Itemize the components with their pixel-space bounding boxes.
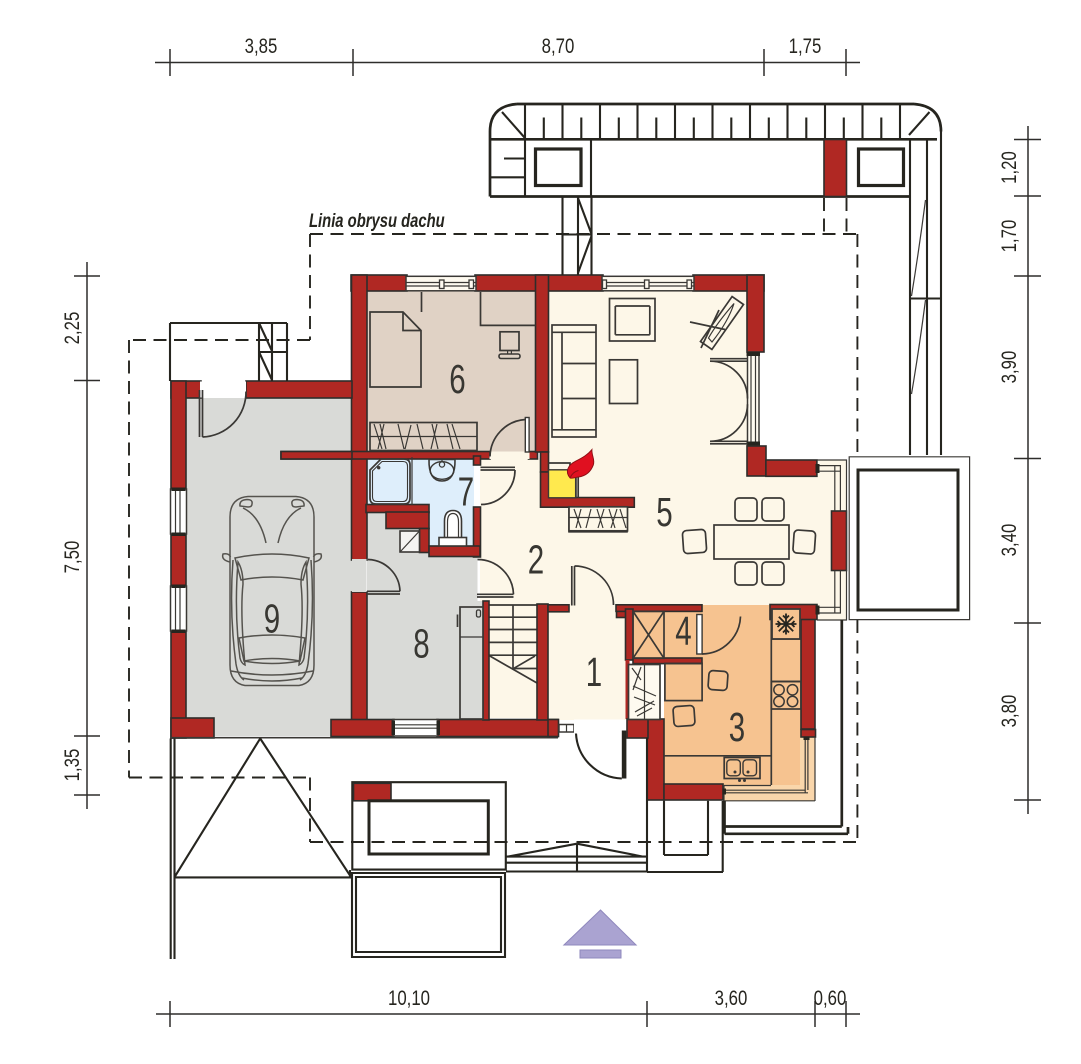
svg-text:1,75: 1,75 — [789, 35, 822, 58]
svg-text:8: 8 — [413, 621, 429, 667]
svg-text:1,35: 1,35 — [61, 749, 84, 782]
svg-text:1,20: 1,20 — [998, 151, 1021, 184]
svg-text:3,40: 3,40 — [998, 524, 1021, 557]
svg-text:2: 2 — [528, 537, 544, 583]
svg-text:7,50: 7,50 — [61, 541, 84, 574]
svg-text:7: 7 — [458, 469, 474, 515]
svg-text:Linia obrysu dachu: Linia obrysu dachu — [309, 210, 445, 231]
svg-text:3,85: 3,85 — [245, 35, 278, 58]
svg-text:3,60: 3,60 — [715, 987, 748, 1010]
svg-text:5: 5 — [656, 489, 672, 535]
svg-text:2,25: 2,25 — [61, 312, 84, 345]
svg-text:1,70: 1,70 — [998, 220, 1021, 253]
svg-text:1: 1 — [586, 649, 602, 695]
svg-text:3,80: 3,80 — [998, 695, 1021, 728]
svg-text:0,60: 0,60 — [814, 987, 847, 1010]
svg-text:4: 4 — [675, 608, 691, 654]
svg-text:3: 3 — [729, 704, 745, 750]
svg-text:10,10: 10,10 — [388, 987, 430, 1010]
svg-text:3,90: 3,90 — [998, 351, 1021, 384]
svg-text:6: 6 — [449, 356, 465, 402]
svg-text:8,70: 8,70 — [542, 35, 575, 58]
